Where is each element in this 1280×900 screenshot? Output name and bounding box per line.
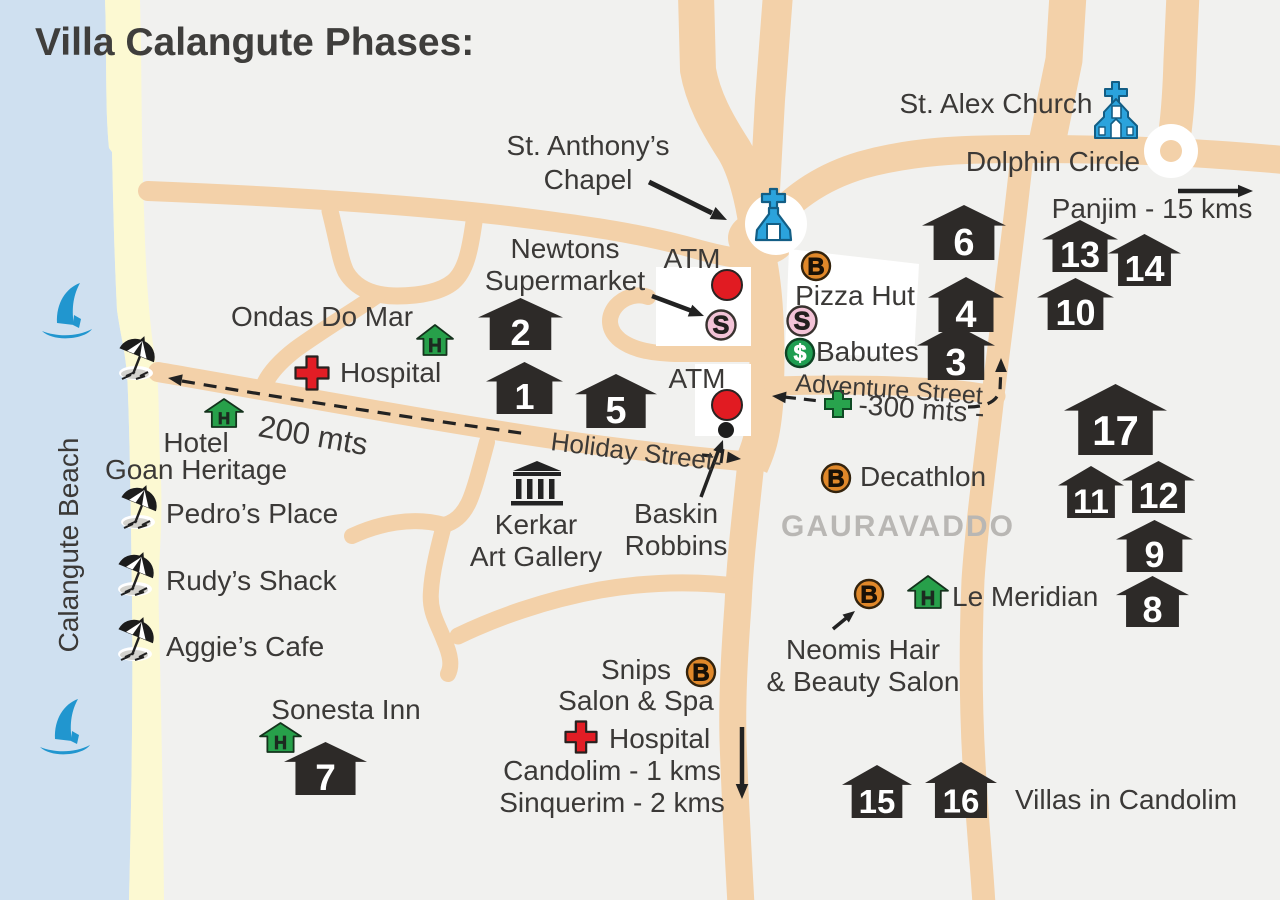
svg-text:11: 11	[1073, 483, 1109, 521]
svg-text:St. Alex Church: St. Alex Church	[900, 88, 1093, 119]
svg-text:Dolphin Circle: Dolphin Circle	[966, 146, 1140, 177]
svg-text:Hospital: Hospital	[609, 723, 710, 754]
svg-text:Goan Heritage: Goan Heritage	[105, 454, 287, 485]
svg-text:Supermarket: Supermarket	[485, 265, 646, 296]
svg-text:Le Meridian: Le Meridian	[952, 581, 1098, 612]
svg-text:Kerkar: Kerkar	[495, 509, 577, 540]
svg-text:H: H	[274, 733, 287, 753]
svg-text:GAURAVADDO: GAURAVADDO	[781, 510, 1015, 543]
svg-text:10: 10	[1055, 292, 1095, 333]
svg-text:B: B	[692, 660, 709, 687]
svg-text:S: S	[794, 308, 811, 336]
svg-text:12: 12	[1138, 475, 1178, 516]
svg-text:Rudy’s Shack: Rudy’s Shack	[166, 565, 338, 596]
svg-text:Candolim - 1 kms: Candolim - 1 kms	[503, 755, 721, 786]
svg-text:17: 17	[1092, 407, 1139, 454]
svg-text:2: 2	[510, 312, 530, 353]
svg-text:15: 15	[859, 783, 896, 820]
svg-text:Snips: Snips	[601, 654, 671, 685]
svg-text:ATM: ATM	[668, 363, 725, 394]
svg-text:Ondas Do Mar: Ondas Do Mar	[231, 301, 413, 332]
svg-text:Villas in Candolim: Villas in Candolim	[1015, 784, 1237, 815]
svg-text:B: B	[807, 254, 824, 281]
svg-text:5: 5	[605, 390, 626, 432]
svg-text:Neomis Hair: Neomis Hair	[786, 634, 940, 665]
svg-text:Hospital: Hospital	[340, 357, 441, 388]
svg-text:3: 3	[945, 342, 966, 384]
svg-text:Chapel: Chapel	[544, 164, 633, 195]
svg-text:8: 8	[1142, 589, 1162, 630]
svg-text:Calangute Beach: Calangute Beach	[53, 438, 84, 653]
svg-text:Aggie’s Cafe: Aggie’s Cafe	[166, 631, 324, 662]
svg-text:6: 6	[953, 222, 974, 264]
svg-text:13: 13	[1060, 234, 1100, 275]
svg-text:Sinquerim - 2 kms: Sinquerim - 2 kms	[499, 787, 725, 818]
svg-text:ATM: ATM	[663, 243, 720, 274]
svg-text:St. Anthony’s: St. Anthony’s	[507, 130, 670, 161]
svg-text:Pedro’s Place: Pedro’s Place	[166, 498, 338, 529]
svg-text:Decathlon: Decathlon	[860, 461, 986, 492]
svg-text:H: H	[218, 409, 230, 428]
svg-text:Panjim - 15 kms: Panjim - 15 kms	[1052, 193, 1253, 224]
svg-text:S: S	[713, 312, 730, 340]
svg-text:1: 1	[514, 376, 534, 417]
svg-text:Babutes: Babutes	[816, 336, 919, 367]
svg-text:H: H	[921, 588, 935, 610]
svg-text:Newtons: Newtons	[511, 233, 620, 264]
svg-text:Art Gallery: Art Gallery	[470, 541, 602, 572]
svg-text:$: $	[794, 340, 807, 366]
svg-text:Villa Calangute Phases:: Villa Calangute Phases:	[35, 21, 474, 64]
svg-text:Robbins: Robbins	[625, 530, 728, 561]
svg-text:Salon & Spa: Salon & Spa	[558, 685, 714, 716]
svg-text:14: 14	[1124, 248, 1164, 289]
svg-text:Pizza Hut: Pizza Hut	[795, 280, 915, 311]
svg-text:16: 16	[943, 783, 980, 820]
svg-text:& Beauty Salon: & Beauty Salon	[766, 666, 959, 697]
svg-text:B: B	[860, 582, 877, 609]
svg-text:9: 9	[1144, 534, 1164, 575]
svg-text:7: 7	[315, 757, 336, 798]
svg-text:Sonesta Inn: Sonesta Inn	[271, 694, 420, 725]
svg-text:Baskin: Baskin	[634, 498, 718, 529]
svg-text:B: B	[827, 466, 844, 493]
svg-text:H: H	[428, 336, 442, 357]
